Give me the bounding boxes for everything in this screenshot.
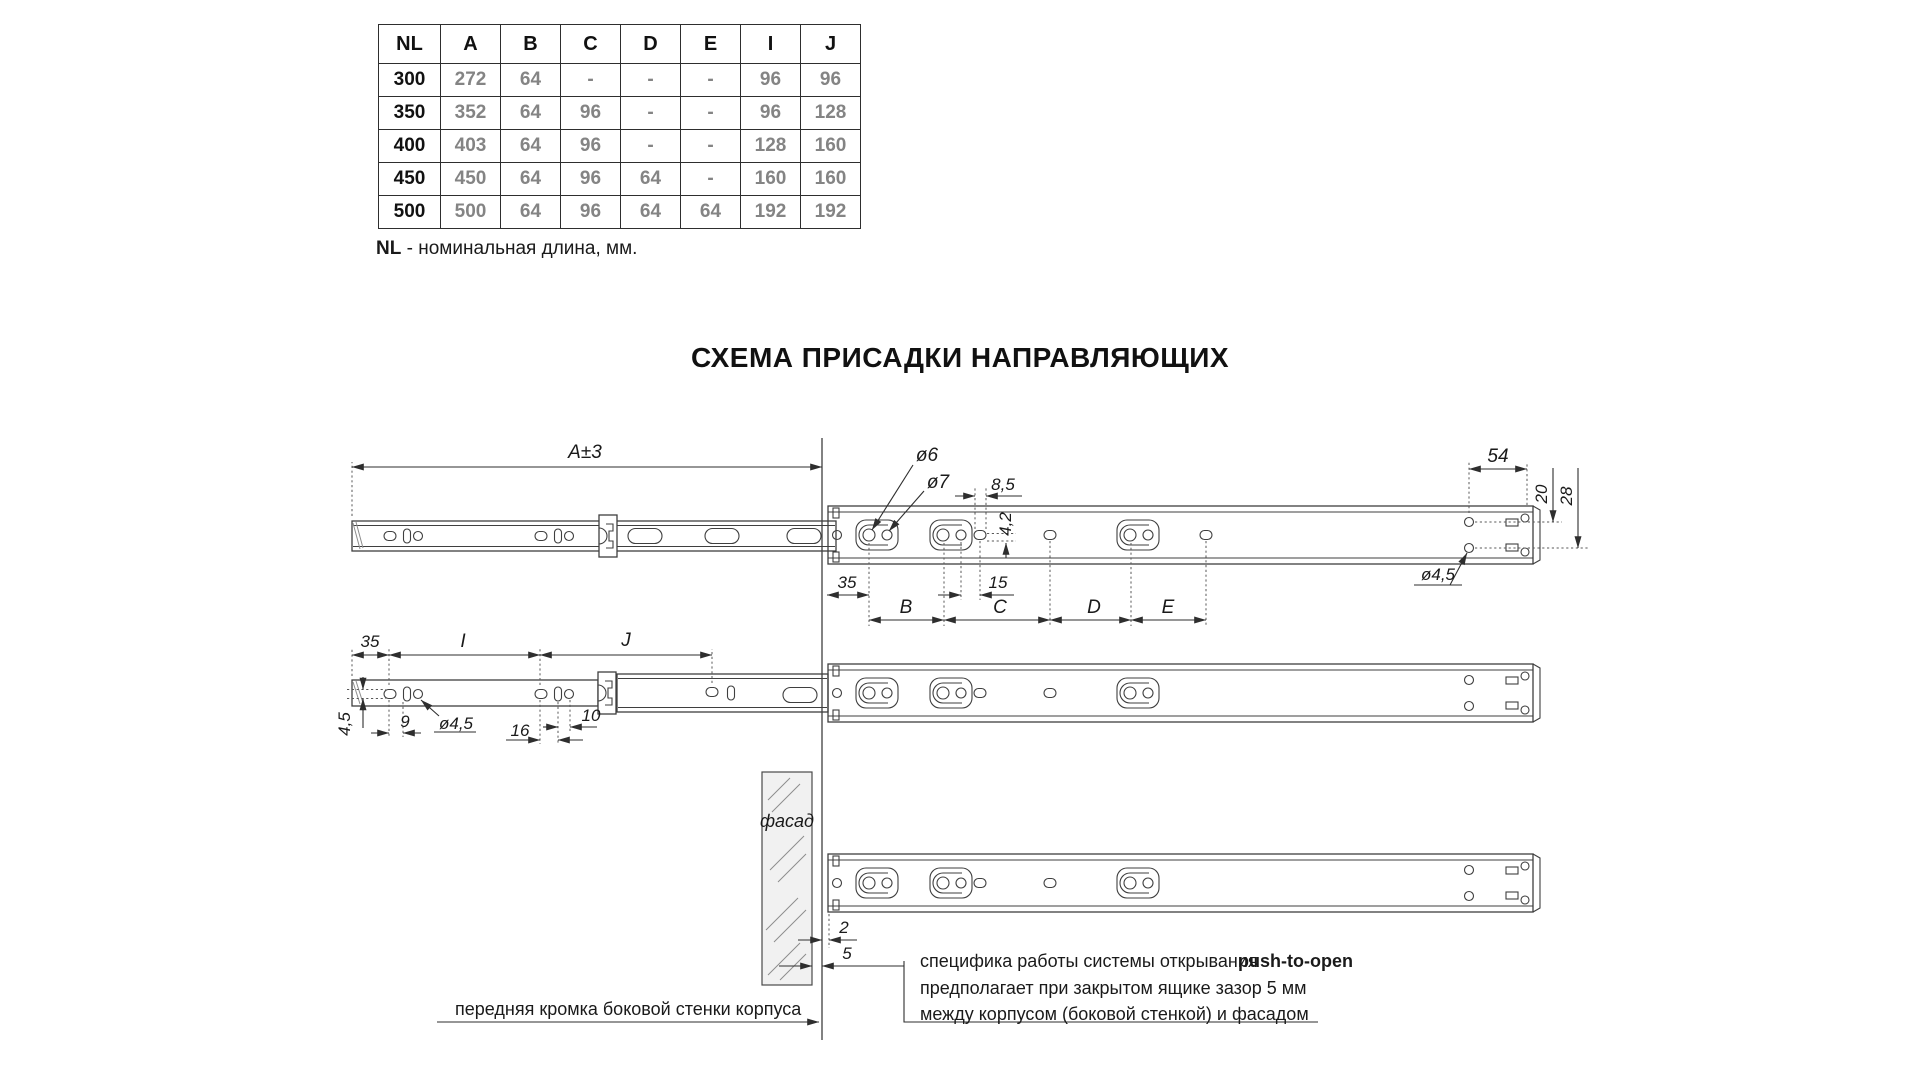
dim-54: 54 <box>1487 446 1508 467</box>
dim-B: B <box>900 597 913 618</box>
facade-label: фасад <box>760 811 814 831</box>
dim-16: 16 <box>511 721 530 740</box>
cabinet-member-bottom <box>828 854 1540 912</box>
dim-9: 9 <box>400 712 410 731</box>
dim-hole-dia-6: ø6 <box>916 445 939 466</box>
page: NLABCDEIJ 30027264---96963503526496--961… <box>0 0 1920 1080</box>
note-line2: предполагает при закрытом ящике зазор 5 … <box>920 978 1307 998</box>
dim-J: J <box>620 630 631 651</box>
dim-20: 20 <box>1532 484 1551 504</box>
disconnect-clip-top <box>599 515 617 557</box>
dim-I: I <box>460 631 466 652</box>
note-line1-bold: push-to-open <box>1238 951 1353 971</box>
extension-lines <box>347 462 1588 948</box>
dim-D: D <box>1087 597 1101 618</box>
dim-overall-length: A±3 <box>567 442 602 463</box>
slide-assembly-top-cabinet-member <box>828 506 1540 564</box>
dim-4-2: 4,2 <box>996 512 1015 536</box>
facade-panel: фасад <box>760 772 814 985</box>
dim-35-top: 35 <box>838 573 857 592</box>
dim-15: 15 <box>989 573 1008 592</box>
cabinet-member-middle <box>828 664 1540 722</box>
dim-C: C <box>993 597 1007 618</box>
dim-hole-dia-4-5-right: ø4,5 <box>1421 565 1456 584</box>
front-edge-label: передняя кромка боковой стенки корпуса <box>455 999 802 1019</box>
note-line3: между корпусом (боковой стенкой) и фасад… <box>920 1004 1309 1024</box>
drilling-scheme-drawing: фасад <box>0 0 1920 1080</box>
dimension-lines <box>352 465 1578 1022</box>
dim-hole-dia-7: ø7 <box>927 472 951 493</box>
slide-assembly-top-drawer-member <box>352 515 836 557</box>
dim-E: E <box>1162 597 1175 618</box>
dim-2: 2 <box>838 918 849 937</box>
disconnect-clip-middle <box>598 672 616 714</box>
dim-35-mid: 35 <box>361 632 380 651</box>
note-line1-prefix: специфика работы системы открывания <box>920 951 1258 971</box>
dim-5: 5 <box>842 944 852 963</box>
dim-10: 10 <box>582 706 601 725</box>
dim-28: 28 <box>1557 486 1576 506</box>
dim-8-5: 8,5 <box>991 475 1015 494</box>
dim-4-5-rotated: 4,5 <box>335 712 354 736</box>
dim-hole-dia-4-5-mid: ø4,5 <box>439 714 474 733</box>
